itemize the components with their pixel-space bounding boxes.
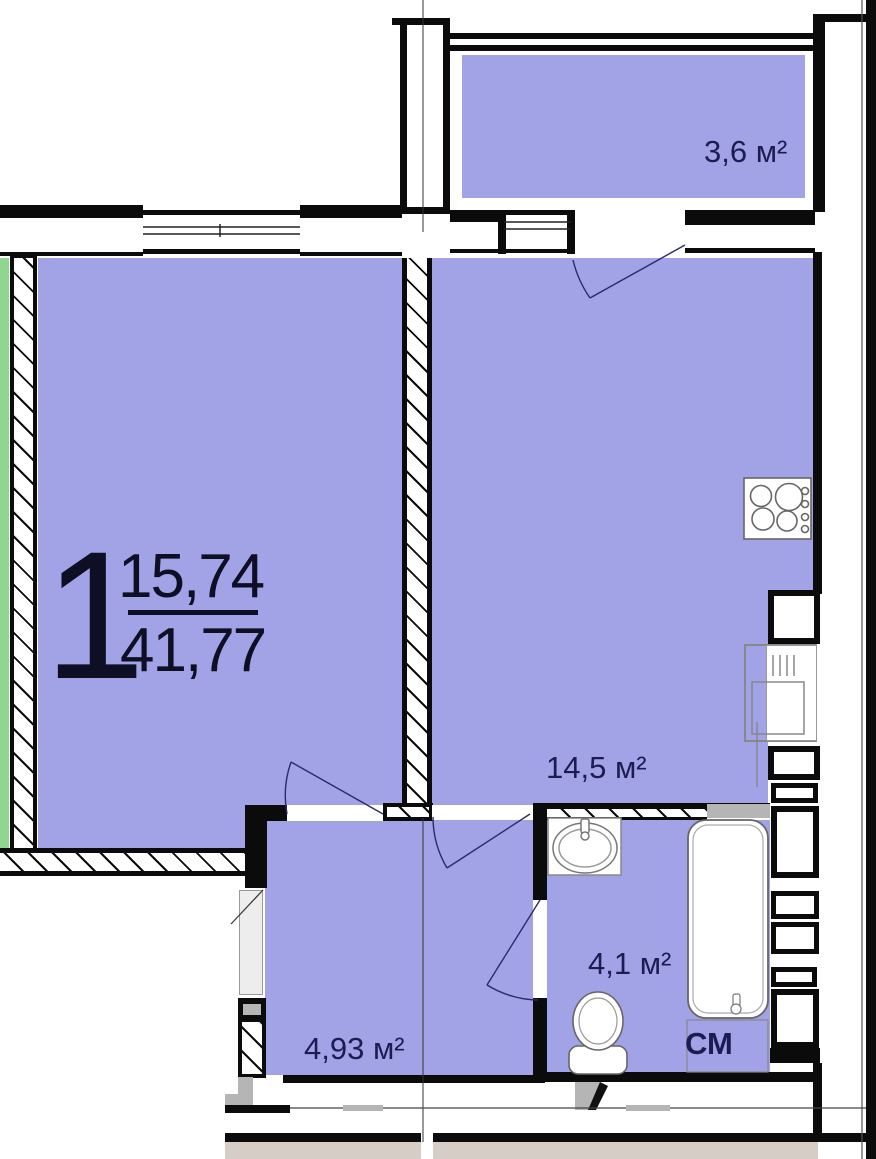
vent-shaft-f xyxy=(771,891,819,919)
appliance-body xyxy=(766,645,817,741)
top-right-cap xyxy=(813,14,866,22)
shaft-column-base xyxy=(770,1048,820,1063)
vent-shaft-a xyxy=(768,590,820,644)
vent-duct-cap xyxy=(392,18,404,25)
left-exterior-wall xyxy=(10,254,37,848)
entry-bottom-bar xyxy=(225,1105,290,1113)
vent-shaft-i xyxy=(771,989,819,1048)
vent-duct xyxy=(400,18,450,214)
kitchen-door-threshold xyxy=(432,805,533,820)
bath-wall-lower xyxy=(533,998,547,1075)
vent-shaft-g xyxy=(771,922,819,954)
living-window-frame xyxy=(143,224,300,237)
bottom-wall-right xyxy=(433,1133,876,1142)
kitchen-right-wall xyxy=(813,252,822,594)
living-door-threshold xyxy=(287,805,383,821)
floor-plan: 1 15,74 41,77 3,6 м² 14,5 м² 4,1 м² 4,93… xyxy=(0,0,876,1159)
mid-wall xyxy=(402,258,432,807)
kitchen-window-top xyxy=(502,210,573,215)
living-area-value: 15,74 xyxy=(118,546,263,608)
room-living-lower xyxy=(38,807,245,848)
kitchen-window-frame xyxy=(504,222,571,229)
balcony-bottom-wall-right xyxy=(685,210,815,225)
living-window-outer xyxy=(143,210,300,215)
wall-top-mid-innerline xyxy=(300,252,402,256)
room-kitchen xyxy=(432,258,813,594)
kitchen-area-label: 14,5 м² xyxy=(546,750,647,786)
kitchen-window-jamb-right xyxy=(567,210,575,254)
vent-shaft-e xyxy=(771,806,819,878)
vent-shaft-h xyxy=(771,967,817,987)
bath-door-threshold xyxy=(533,900,547,998)
total-area-value: 41,77 xyxy=(120,620,265,682)
hall-top-band xyxy=(245,805,287,821)
vent-shaft-c xyxy=(768,746,820,780)
kitchen-window-jamb-left xyxy=(498,210,506,254)
neighbor-area-left xyxy=(225,1142,421,1159)
threshold-wedge xyxy=(575,1082,608,1110)
bath-wall-upper xyxy=(533,803,547,900)
balcony-rail-outer xyxy=(450,33,815,39)
bath-top-hatch xyxy=(547,806,707,820)
balcony-area-label: 3,6 м² xyxy=(704,134,787,170)
hall-bottom-wall xyxy=(283,1075,545,1083)
balcony-rail-inner xyxy=(450,45,815,51)
entry-block-gray xyxy=(243,1004,261,1015)
bath-top-gray xyxy=(707,804,770,818)
entry-hatch-block xyxy=(238,1018,266,1078)
hall-top-hatch-block xyxy=(383,803,433,821)
fraction-line xyxy=(128,610,258,615)
living-bottom-wall xyxy=(0,848,246,876)
wall-top-mid xyxy=(300,205,402,218)
bathroom-area-label: 4,1 м² xyxy=(588,946,671,982)
corridor-line xyxy=(290,1105,866,1111)
sill-line-right xyxy=(685,248,815,253)
entry-door-leaf xyxy=(239,890,263,995)
entry-corner-block xyxy=(245,818,267,888)
facade-strip xyxy=(0,258,9,848)
neighbor-area-right xyxy=(433,1142,818,1159)
right-wall-lower xyxy=(813,1063,822,1142)
living-window-inner xyxy=(143,249,300,254)
washing-machine-label: СМ xyxy=(685,1026,733,1062)
balcony-right-wall xyxy=(813,20,825,212)
room-balcony xyxy=(462,55,805,198)
wall-top-left xyxy=(0,205,143,218)
sill-line-left xyxy=(450,249,573,253)
bath-bottom-wall xyxy=(545,1072,822,1082)
hallway-area-label: 4,93 м² xyxy=(304,1031,405,1067)
outer-right-wall xyxy=(866,0,876,1159)
bottom-wall-left xyxy=(225,1133,421,1142)
vent-shaft-d xyxy=(771,783,818,803)
balcony-bottom-wall-left xyxy=(450,210,505,222)
